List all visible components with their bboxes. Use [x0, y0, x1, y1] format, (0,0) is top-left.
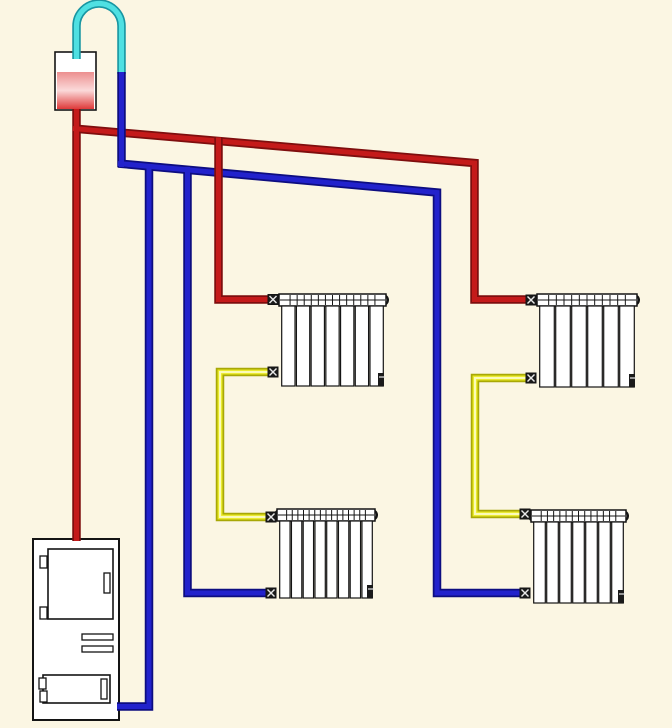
boiler-upper-door [48, 549, 113, 619]
radiator-section [327, 521, 337, 598]
radiator-section [282, 306, 295, 386]
boiler-vent-0 [82, 634, 113, 640]
expansion-tank [55, 52, 96, 110]
radiator-upper-right-inlet-fitting [526, 295, 536, 305]
drain-plug [629, 374, 635, 387]
radiator-upper-left-outlet-fitting [268, 367, 278, 377]
boiler-lower-hinge-1 [40, 691, 47, 702]
radiator-section [350, 521, 360, 598]
radiator-lower-right-outlet-fitting [520, 588, 530, 598]
boiler-upper-hinge-1 [40, 607, 47, 619]
radiator-upper-right-outlet-fitting [526, 373, 536, 383]
expansion-tank-liquid [57, 72, 94, 109]
radiator-section [560, 522, 572, 603]
boiler-lower-door [43, 675, 110, 703]
boiler-vent-1 [82, 646, 113, 652]
radiator-section [303, 521, 313, 598]
drain-plug [378, 373, 384, 386]
radiator-lower-left-inlet-fitting [266, 512, 276, 522]
radiator-section [291, 521, 301, 598]
radiator-section [280, 521, 290, 598]
radiator-section [599, 522, 611, 603]
boiler-lower-hinge-0 [39, 678, 46, 689]
drain-plug [618, 590, 624, 603]
radiator-section [315, 521, 325, 598]
boiler-upper-handle [104, 573, 110, 593]
radiator-section [534, 522, 546, 603]
radiator-section [588, 306, 603, 387]
boiler-lower-handle [101, 679, 107, 699]
radiator-section [311, 306, 324, 386]
radiator-section [296, 306, 309, 386]
radiator-section [604, 306, 619, 387]
boiler-upper-hinge-0 [40, 556, 47, 568]
heating-system-diagram [0, 0, 672, 728]
radiator-section [547, 522, 559, 603]
radiator-section [572, 306, 587, 387]
radiator-upper-left [277, 294, 388, 386]
radiator-section [355, 306, 368, 386]
diagram-canvas [0, 0, 672, 728]
radiator-section [556, 306, 571, 387]
radiator-section [573, 522, 585, 603]
radiator-lower-right [529, 510, 628, 603]
radiator-section [586, 522, 598, 603]
radiator-lower-left-outlet-fitting [266, 588, 276, 598]
radiator-lower-right-inlet-fitting [520, 509, 530, 519]
drain-plug [367, 585, 373, 598]
radiator-upper-left-inlet-fitting [268, 295, 278, 305]
radiator-section [341, 306, 354, 386]
radiator-section [540, 306, 555, 387]
boiler [33, 539, 119, 720]
radiator-section [338, 521, 348, 598]
radiator-section [326, 306, 339, 386]
